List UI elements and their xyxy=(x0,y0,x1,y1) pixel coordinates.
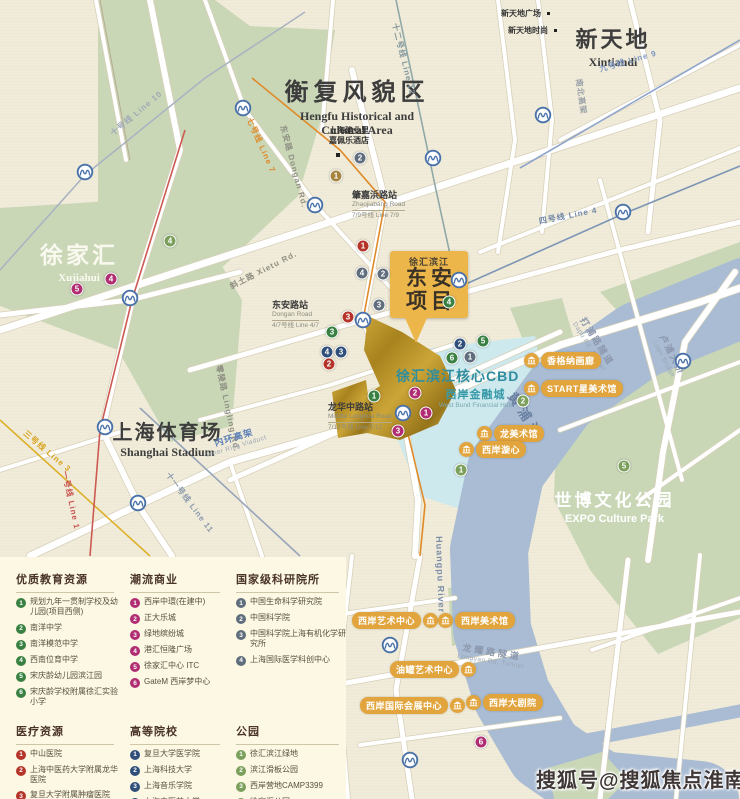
project-name-line2: 项目 xyxy=(390,291,468,314)
legend-item-text: 徐汇滨江绿地 xyxy=(250,749,298,759)
map-marker: 3 xyxy=(342,311,355,324)
legend-panel: 优质教育资源1规划九年一贯制学校及幼儿园(项目西侧)2南洋中学3南洋模范中学4西… xyxy=(0,557,346,799)
legend-item-text: 南洋中学 xyxy=(30,623,62,633)
museum-icon xyxy=(423,613,438,628)
legend-section: 医疗资源1中山医院2上海中医药大学附属龙华医院3复旦大学附属肿瘤医院 xyxy=(16,723,122,799)
metro-station-icon xyxy=(122,290,139,307)
metro-station-icon xyxy=(425,150,442,167)
legend-item: 6宋庆龄学校附属徐汇实验小学 xyxy=(16,687,122,708)
poi-badge: 西岸漩心 xyxy=(459,441,526,458)
legend-item-text: 复旦大学医学院 xyxy=(144,749,200,759)
legend-item-number: 1 xyxy=(16,598,26,608)
map-marker: 5 xyxy=(477,335,490,348)
legend-item: 2上海科技大学 xyxy=(130,765,228,776)
metro-station-icon xyxy=(615,204,632,221)
station-name-en: Middle Longhua Road xyxy=(328,413,392,421)
museum-icon xyxy=(466,695,481,710)
legend-section-title: 优质教育资源 xyxy=(16,571,114,593)
legend-item-text: 绿地缤纷城 xyxy=(144,629,184,639)
legend-item-number: 2 xyxy=(236,766,246,776)
poi-label: 新天地广场 xyxy=(501,8,550,19)
map-marker: 3 xyxy=(373,299,386,312)
legend-item: 1西岸中環(在建中) xyxy=(130,597,228,608)
legend-item-text: 宋庆龄学校附属徐汇实验小学 xyxy=(30,687,122,708)
watermark: 搜狐号@搜狐焦点淮南站 xyxy=(536,764,740,793)
legend-item-number: 4 xyxy=(16,656,26,666)
legend-item: 1规划九年一贯制学校及幼儿园(项目西侧) xyxy=(16,597,122,618)
museum-icon xyxy=(461,662,476,677)
legend-item-number: 1 xyxy=(236,750,246,760)
hotel-label: 上海建业里嘉佩乐酒店 xyxy=(314,126,384,147)
map-marker: 4 xyxy=(321,346,334,359)
legend-item-number: 4 xyxy=(236,656,246,666)
legend-item: 4上海国际医学科创中心 xyxy=(236,655,348,666)
metro-station-icon xyxy=(235,100,252,117)
poi-badge: 西岸美术馆 xyxy=(438,612,515,629)
poi-text: 新天地广场 xyxy=(501,8,541,19)
poi-badge: 油罐艺术中心 xyxy=(390,661,476,678)
poi-badge-label: 西岸美术馆 xyxy=(455,612,515,629)
expo-zh: 世博文化公园 xyxy=(522,486,707,511)
legend-item-number: 3 xyxy=(236,782,246,792)
map-marker: 1 xyxy=(420,407,433,420)
legend-item-number: 1 xyxy=(236,598,246,608)
legend-item-text: 滨江滑板公园 xyxy=(250,765,298,775)
metro-station-icon xyxy=(307,197,324,214)
map-marker: 2 xyxy=(454,338,467,351)
legend-item: 2中国科学院 xyxy=(236,613,348,624)
hotel-line1: 上海建业里 xyxy=(314,126,384,136)
legend-section: 优质教育资源1规划九年一贯制学校及幼儿园(项目西侧)2南洋中学3南洋模范中学4西… xyxy=(16,571,122,713)
map-marker: 4 xyxy=(105,273,118,286)
poi-dot xyxy=(554,29,557,32)
map-marker: 2 xyxy=(354,152,367,165)
map-marker: 4 xyxy=(356,267,369,280)
station-name-zh: 东安路站 xyxy=(272,300,319,311)
poi-badge-label: 香格纳画廊 xyxy=(541,352,601,369)
legend-item-number: 1 xyxy=(16,750,26,760)
legend-item-text: 中山医院 xyxy=(30,749,62,759)
legend-item: 4港汇恒隆广场 xyxy=(130,645,228,656)
map-marker: 1 xyxy=(455,464,468,477)
xujiahui-zh: 徐家汇 xyxy=(25,236,133,270)
poi-badge-label: 油罐艺术中心 xyxy=(390,661,459,678)
legend-item-number: 3 xyxy=(16,791,26,799)
legend-item: 1中国生命科学研究院 xyxy=(236,597,348,608)
hotel-dot xyxy=(336,153,340,157)
poi-badge: 西岸艺术中心 xyxy=(352,612,438,629)
legend-item-number: 3 xyxy=(16,640,26,650)
museum-icon xyxy=(438,613,453,628)
legend-item-text: GateM 西岸梦中心 xyxy=(144,677,210,687)
legend-item-number: 2 xyxy=(130,614,140,624)
map-marker: 1 xyxy=(357,240,370,253)
museum-icon xyxy=(524,381,539,396)
legend-section-title: 高等院校 xyxy=(130,723,220,745)
map-marker: 3 xyxy=(326,326,339,339)
legend-item-text: 中国科学院上海有机化学研究所 xyxy=(250,629,348,650)
map-marker: 5 xyxy=(618,460,631,473)
poi-text: 新天地时尚 xyxy=(508,25,548,36)
hengfu-zh: 衡复风貌区 xyxy=(237,72,477,107)
poi-badge-label: 西岸艺术中心 xyxy=(352,612,421,629)
legend-section: 国家级科研院所1中国生命科学研究院2中国科学院3中国科学院上海有机化学研究所4上… xyxy=(236,571,348,713)
legend-item: 2上海中医药大学附属龙华医院 xyxy=(16,765,122,786)
hengfu-en1: Hengfu Historical and xyxy=(237,110,477,124)
metro-station-icon xyxy=(97,419,114,436)
map-marker: 3 xyxy=(335,346,348,359)
map-marker: 5 xyxy=(71,283,84,296)
legend-item-text: 西岸中環(在建中) xyxy=(144,597,205,607)
legend-section-title: 潮流商业 xyxy=(130,571,220,593)
legend-item-text: 上海音乐学院 xyxy=(144,781,192,791)
museum-icon xyxy=(524,353,539,368)
legend-item-text: 正大乐城 xyxy=(144,613,176,623)
legend-item: 2南洋中学 xyxy=(16,623,122,634)
station-lines: 7/9号线 Line 7/9 xyxy=(352,210,405,220)
legend-item: 2滨江滑板公园 xyxy=(236,765,348,776)
metro-station-icon xyxy=(382,637,399,654)
map-marker: 2 xyxy=(409,387,422,400)
legend-item-text: 南洋模范中学 xyxy=(30,639,78,649)
map-marker: 2 xyxy=(323,358,336,371)
legend-item-number: 2 xyxy=(130,766,140,776)
metro-station-icon xyxy=(355,312,372,329)
legend-section: 高等院校1复旦大学医学院2上海科技大学3上海音乐学院4上海中医药大学 xyxy=(130,723,228,799)
legend-section: 潮流商业1西岸中環(在建中)2正大乐城3绿地缤纷城4港汇恒隆广场5徐家汇中心 I… xyxy=(130,571,228,713)
poi-badge-label: 西岸大剧院 xyxy=(483,694,543,711)
legend-item-text: 上海中医药大学附属龙华医院 xyxy=(30,765,122,786)
poi-badge: 香格纳画廊 xyxy=(524,352,601,369)
legend-item-text: 港汇恒隆广场 xyxy=(144,645,192,655)
legend-item: 3中国科学院上海有机化学研究所 xyxy=(236,629,348,650)
legend-item-number: 3 xyxy=(130,782,140,792)
legend-item-number: 1 xyxy=(130,598,140,608)
legend-item: 3复旦大学附属肿瘤医院 xyxy=(16,790,122,799)
map-marker: 1 xyxy=(368,390,381,403)
legend-item: 4西南位育中学 xyxy=(16,655,122,666)
legend-item-text: 复旦大学附属肿瘤医院 xyxy=(30,790,110,799)
legend-item-text: 宋庆龄幼儿园滨江园 xyxy=(30,671,102,681)
legend-item: 1中山医院 xyxy=(16,749,122,760)
map-marker: 4 xyxy=(443,296,456,309)
map-marker: 3 xyxy=(392,425,405,438)
legend-item-number: 5 xyxy=(16,672,26,682)
station-name-en: Dongan Road xyxy=(272,311,319,319)
map-marker: 6 xyxy=(446,352,459,365)
poi-badge-label: 西岸漩心 xyxy=(476,441,526,458)
metro-station-label: 肇嘉浜路站Zhaojiabang Road7/9号线 Line 7/9 xyxy=(352,190,405,221)
legend-item-number: 2 xyxy=(16,766,26,776)
legend-item: 1复旦大学医学院 xyxy=(130,749,228,760)
legend-item: 1徐汇滨江绿地 xyxy=(236,749,348,760)
legend-item: 3南洋模范中学 xyxy=(16,639,122,650)
poi-dot xyxy=(547,12,550,15)
poi-badge-label: 西岸国际会展中心 xyxy=(360,697,448,714)
legend-item-number: 4 xyxy=(130,646,140,656)
legend-item: 6GateM 西岸梦中心 xyxy=(130,677,228,688)
legend-item: 2正大乐城 xyxy=(130,613,228,624)
poi-badge: 西岸国际会展中心 xyxy=(360,697,465,714)
museum-icon xyxy=(450,698,465,713)
poi-badge: START星美术馆 xyxy=(524,380,623,397)
museum-icon xyxy=(477,426,492,441)
legend-item-number: 3 xyxy=(130,630,140,640)
hotel-line2: 嘉佩乐酒店 xyxy=(314,136,384,146)
map-marker: 1 xyxy=(330,170,343,183)
legend-section: 公园1徐汇滨江绿地2滨江滑板公园3西岸营地CAMP33994徐家汇公园5世博文化… xyxy=(236,723,348,799)
metro-station-label: 东安路站Dongan Road4/7号线 Line 4/7 xyxy=(272,300,319,331)
metro-station-icon xyxy=(77,164,94,181)
metro-station-icon xyxy=(395,405,412,422)
metro-station-icon xyxy=(130,495,147,512)
map-canvas: 衡复风貌区 Hengfu Historical and Cultural Are… xyxy=(0,0,740,799)
callout-pointer xyxy=(405,318,427,343)
legend-item: 5徐家汇中心 ITC xyxy=(130,661,228,672)
station-lines: 7/12号线 Line 7/12 xyxy=(328,422,392,432)
poi-label: 新天地时尚 xyxy=(508,25,557,36)
expo-en: EXPO Culture Park xyxy=(522,513,707,526)
metro-station-icon xyxy=(451,272,468,289)
legend-item-number: 3 xyxy=(236,630,246,640)
map-marker: 4 xyxy=(164,235,177,248)
legend-item-number: 5 xyxy=(130,662,140,672)
station-name-zh: 龙华中路站 xyxy=(328,402,392,413)
map-marker: 2 xyxy=(377,268,390,281)
legend-section-title: 国家级科研院所 xyxy=(236,571,339,593)
area-label-expo: 世博文化公园 EXPO Culture Park xyxy=(522,486,707,526)
legend-item-text: 中国科学院 xyxy=(250,613,290,623)
poi-badge: 西岸大剧院 xyxy=(466,694,543,711)
legend-item: 3西岸营地CAMP3399 xyxy=(236,781,348,792)
metro-station-icon xyxy=(675,353,692,370)
legend-item-text: 上海国际医学科创中心 xyxy=(250,655,330,665)
legend-item: 3上海音乐学院 xyxy=(130,781,228,792)
legend-item: 3绿地缤纷城 xyxy=(130,629,228,640)
legend-section-title: 公园 xyxy=(236,723,339,745)
station-name-zh: 肇嘉浜路站 xyxy=(352,190,405,201)
legend-item-text: 上海科技大学 xyxy=(144,765,192,775)
river-channel xyxy=(576,710,740,742)
metro-station-label: 龙华中路站Middle Longhua Road7/12号线 Line 7/12 xyxy=(328,402,392,433)
legend-item: 5宋庆龄幼儿园滨江园 xyxy=(16,671,122,682)
map-marker: 1 xyxy=(464,351,477,364)
legend-item-number: 6 xyxy=(130,678,140,688)
map-marker: 6 xyxy=(475,736,488,749)
legend-item-number: 2 xyxy=(16,624,26,634)
poi-badge-label: START星美术馆 xyxy=(541,380,623,397)
legend-item-number: 6 xyxy=(16,688,26,698)
legend-item-text: 西岸营地CAMP3399 xyxy=(250,781,323,791)
legend-item-number: 1 xyxy=(130,750,140,760)
station-lines: 4/7号线 Line 4/7 xyxy=(272,320,319,330)
station-name-en: Zhaojiabang Road xyxy=(352,201,405,209)
legend-section-title: 医疗资源 xyxy=(16,723,114,745)
legend-item-number: 2 xyxy=(236,614,246,624)
metro-station-icon xyxy=(535,107,552,124)
metro-station-icon xyxy=(402,752,419,769)
poi-badge-label: 龙美术馆 xyxy=(494,425,544,442)
legend-item-text: 中国生命科学研究院 xyxy=(250,597,322,607)
poi-badge: 龙美术馆 xyxy=(477,425,544,442)
legend-item-text: 徐家汇中心 ITC xyxy=(144,661,199,671)
legend-item-text: 规划九年一贯制学校及幼儿园(项目西侧) xyxy=(30,597,122,618)
legend-item-text: 西南位育中学 xyxy=(30,655,78,665)
museum-icon xyxy=(459,442,474,457)
